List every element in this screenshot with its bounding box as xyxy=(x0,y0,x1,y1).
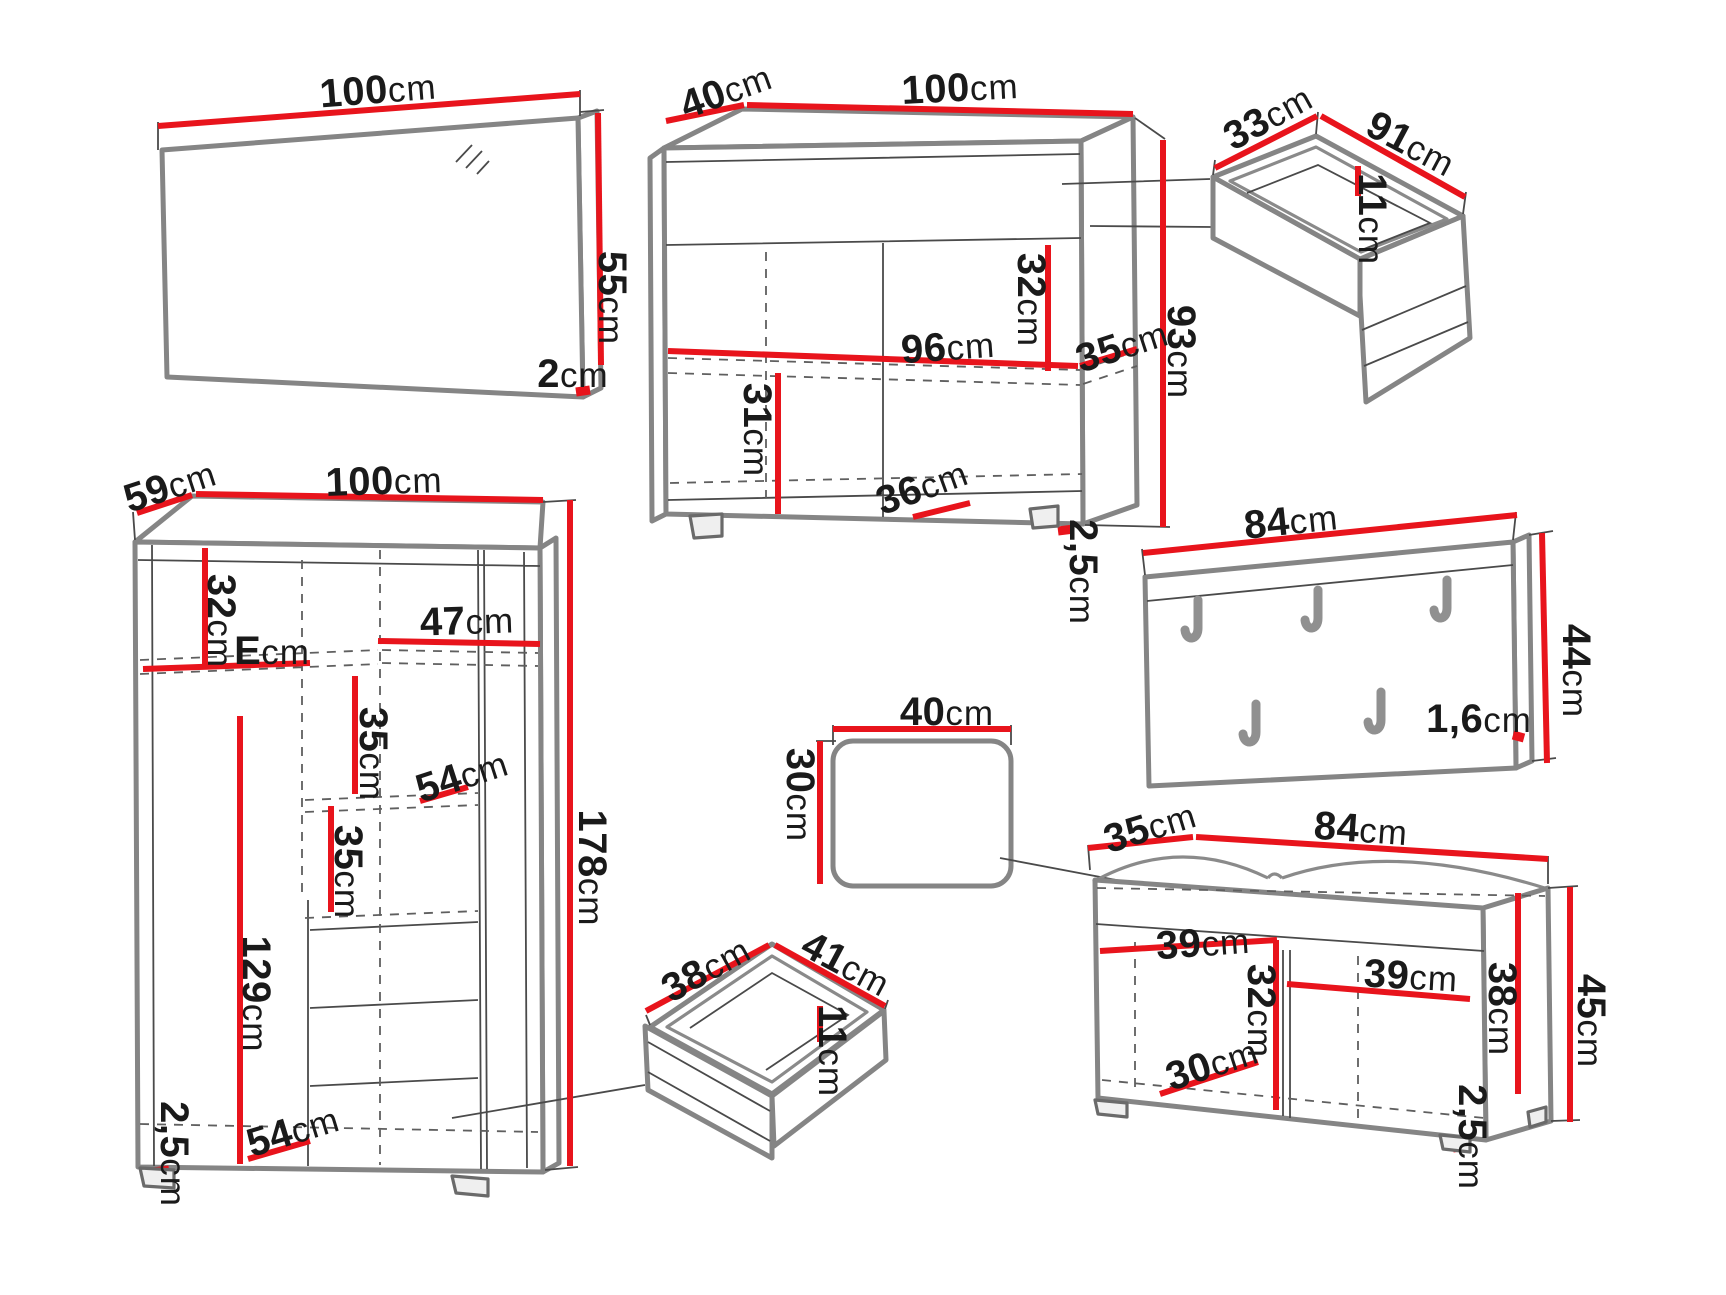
dim-wardrobe-height: 178cm xyxy=(572,810,612,927)
dim-sideboard-inner-width: 96cm xyxy=(900,324,997,370)
dim-wardrobe-left-shelf-width: Ecm xyxy=(234,631,310,671)
dim-mirror-thickness: 2cm xyxy=(537,354,608,394)
dim-top-drawer-inner-height: 11cm xyxy=(1352,173,1392,265)
dim-sideboard-plinth-height: 2,5cm xyxy=(1063,519,1103,625)
dim-bench-width: 84cm xyxy=(1313,806,1410,852)
furniture-dimensions-diagram: 100cm 55cm 2cm 40cm 100cm 32cm 96cm 35cm… xyxy=(0,0,1726,1295)
dim-bench-height: 45cm xyxy=(1571,974,1611,1068)
dim-coat-panel-width: 84cm xyxy=(1242,496,1340,546)
dim-coat-panel-thickness: 1,6cm xyxy=(1426,699,1532,739)
dim-sideboard-width: 100cm xyxy=(901,65,1020,111)
dim-sideboard-height: 93cm xyxy=(1161,305,1201,399)
dim-bench-right-compartment-width: 39cm xyxy=(1363,954,1459,999)
dim-sideboard-bottom-inner-height: 31cm xyxy=(737,383,777,477)
dim-wardrobe-right-shelf-width: 47cm xyxy=(419,599,514,642)
pouf-drawing xyxy=(816,725,1132,886)
dim-coat-panel-height: 44cm xyxy=(1556,624,1596,718)
dim-wardrobe-shelf-gap-lower: 35cm xyxy=(328,825,368,919)
dim-bench-left-compartment-width: 39cm xyxy=(1155,920,1252,966)
dim-bench-plinth-height: 2,5cm xyxy=(1452,1084,1492,1190)
dim-sideboard-top-inner-height: 32cm xyxy=(1011,253,1051,347)
dim-wardrobe-plinth-height: 2,5cm xyxy=(154,1101,194,1207)
dim-pouf-height: 30cm xyxy=(780,748,820,842)
dim-wardrobe-width: 100cm xyxy=(325,459,443,503)
coat-panel-drawing xyxy=(1142,512,1556,786)
dim-mirror-height: 55cm xyxy=(592,251,632,345)
dim-mirror-width: 100cm xyxy=(318,65,438,114)
dim-bottom-drawer-inner-height: 11cm xyxy=(812,1005,852,1097)
dim-wardrobe-shelf-gap-upper: 35cm xyxy=(353,707,393,801)
dim-wardrobe-hanging-height: 129cm xyxy=(236,936,276,1053)
dim-bench-side-inner-height: 38cm xyxy=(1482,962,1522,1056)
mirror-drawing xyxy=(158,90,604,397)
dim-pouf-width: 40cm xyxy=(900,692,994,732)
